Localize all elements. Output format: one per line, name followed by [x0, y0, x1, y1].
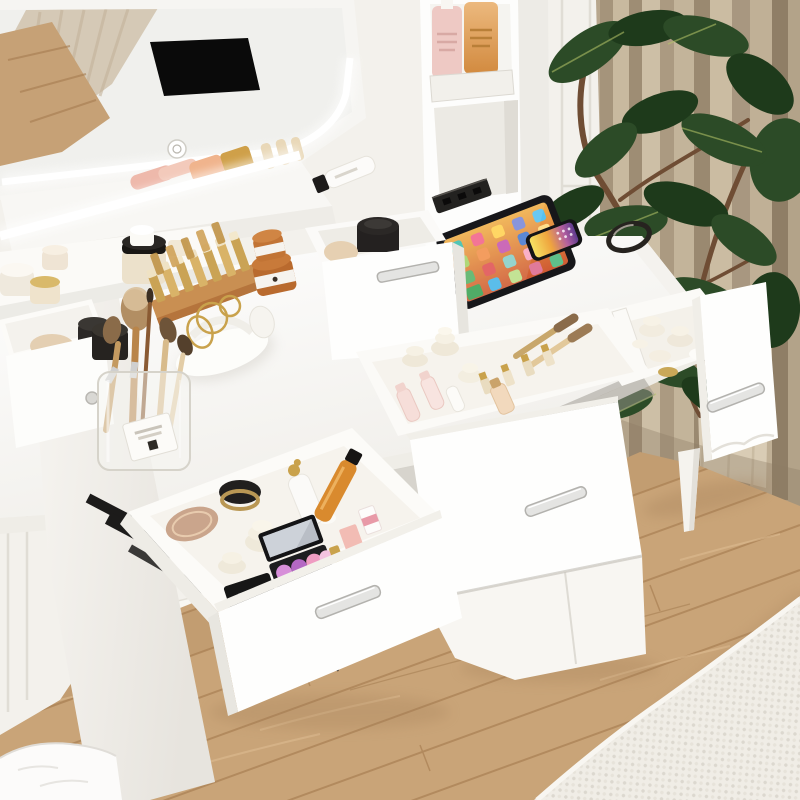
- tower-cubby-shade: [504, 100, 518, 194]
- lotion-bottles: pink and gold pump lotion bottles: [432, 0, 498, 78]
- pink-bottle-pump: [441, 0, 453, 9]
- gold-item: [658, 367, 678, 377]
- vanity-product-photo: Product photo: white makeup vanity dress…: [0, 0, 800, 800]
- reflected-dark-band: [150, 38, 260, 96]
- left-box-knob: [86, 392, 98, 404]
- stool: white seat corner at bottom left: [0, 743, 122, 800]
- photo-canvas: Product photo: white makeup vanity dress…: [0, 0, 800, 800]
- led-touch-button: [168, 140, 186, 158]
- right-drawer-front: [700, 282, 778, 460]
